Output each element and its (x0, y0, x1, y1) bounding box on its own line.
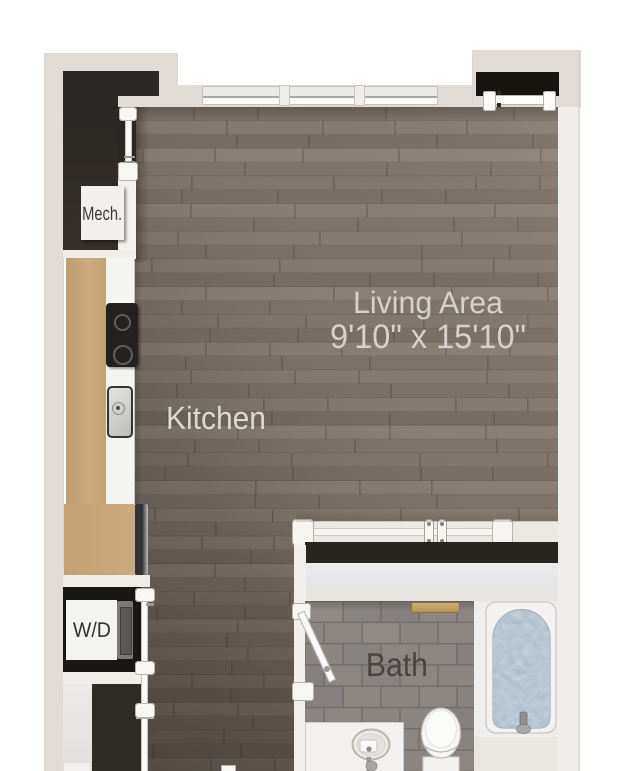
svg-text:9'10" x 15'10": 9'10" x 15'10" (330, 318, 526, 356)
svg-text:Living Area: Living Area (353, 285, 504, 320)
svg-text:Bath: Bath (366, 646, 428, 683)
svg-text:W/D: W/D (73, 619, 111, 642)
svg-text:Mech.: Mech. (82, 204, 122, 225)
svg-text:Kitchen: Kitchen (166, 400, 266, 436)
